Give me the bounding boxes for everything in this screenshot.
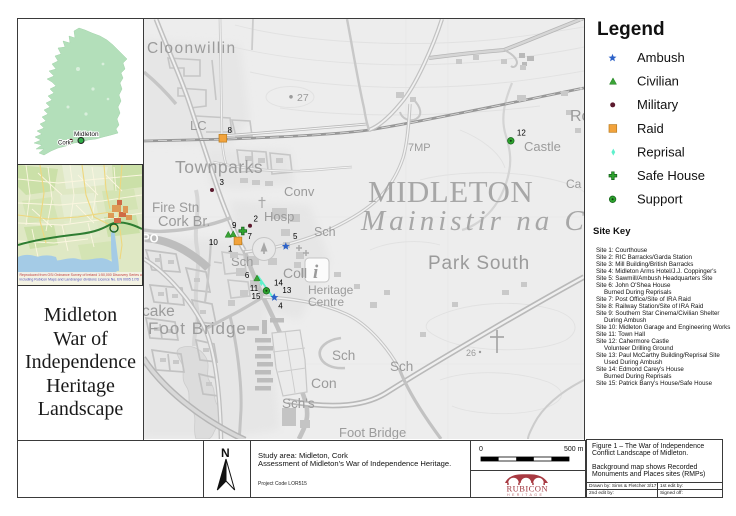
svg-text:Con: Con: [311, 375, 337, 391]
svg-text:9: 9: [232, 221, 237, 230]
svg-text:Cork: Cork: [58, 141, 72, 147]
svg-text:Ro: Ro: [570, 108, 584, 125]
svg-text:3: 3: [220, 178, 225, 187]
svg-text:LC: LC: [190, 118, 207, 133]
svg-text:Civilian: Civilian: [637, 74, 679, 89]
svg-text:MIDLETON: MIDLETON: [368, 174, 533, 209]
svg-text:Raid: Raid: [637, 121, 664, 136]
svg-text:including Rubicon Maps and Lan: including Rubicon Maps and Landranger di…: [20, 278, 140, 282]
svg-text:Midleton: Midleton: [74, 131, 99, 138]
svg-text:Military: Military: [637, 97, 679, 112]
svg-text:7MP: 7MP: [408, 142, 431, 154]
svg-text:Ca: Ca: [566, 177, 582, 191]
svg-text:Foot Bridge: Foot Bridge: [339, 425, 406, 439]
svg-text:Ambush: Ambush: [637, 50, 685, 65]
svg-text:HERITAGE: HERITAGE: [507, 493, 544, 497]
svg-text:4: 4: [278, 301, 283, 310]
svg-text:8: 8: [228, 126, 233, 135]
svg-text:2: 2: [254, 215, 259, 224]
svg-text:Centre: Centre: [308, 295, 344, 309]
svg-text:12: 12: [517, 129, 526, 138]
svg-text:5: 5: [293, 232, 298, 241]
svg-text:PO: PO: [144, 234, 159, 246]
svg-text:N: N: [221, 446, 230, 460]
svg-text:Support: Support: [637, 192, 683, 207]
svg-text:Mainistir na C: Mainistir na C: [360, 205, 584, 237]
svg-text:26: 26: [466, 348, 476, 358]
svg-text:Reprisal: Reprisal: [637, 144, 685, 159]
svg-text:Reproduced from OSi Ordnance S: Reproduced from OSi Ordnance Survey of I…: [20, 273, 143, 277]
svg-text:Sch's: Sch's: [282, 396, 315, 411]
svg-text:Castle: Castle: [524, 139, 561, 154]
svg-text:Safe House: Safe House: [637, 168, 705, 183]
svg-text:7: 7: [248, 232, 253, 241]
svg-text:27: 27: [297, 92, 309, 104]
svg-text:cake: cake: [144, 303, 175, 320]
svg-text:6: 6: [245, 271, 250, 280]
svg-text:Sch: Sch: [332, 348, 355, 363]
svg-text:Cloonwillin: Cloonwillin: [147, 40, 237, 57]
svg-text:Hosp: Hosp: [264, 209, 294, 224]
svg-text:Fire Stn: Fire Stn: [152, 200, 199, 215]
svg-text:500 m: 500 m: [564, 446, 584, 453]
svg-text:Park South: Park South: [428, 253, 530, 274]
svg-text:i: i: [313, 262, 319, 283]
svg-text:Conv: Conv: [284, 184, 315, 199]
svg-text:15: 15: [252, 292, 261, 301]
svg-text:Townparks: Townparks: [175, 157, 263, 177]
svg-text:Sch: Sch: [314, 225, 336, 239]
svg-text:1: 1: [228, 244, 233, 253]
svg-text:10: 10: [209, 238, 218, 247]
svg-text:Sch: Sch: [390, 359, 413, 374]
svg-text:Cork Br.: Cork Br.: [158, 214, 210, 230]
svg-text:13: 13: [282, 286, 291, 295]
svg-text:Foot Bridge: Foot Bridge: [148, 319, 247, 338]
svg-text:0: 0: [479, 446, 483, 453]
